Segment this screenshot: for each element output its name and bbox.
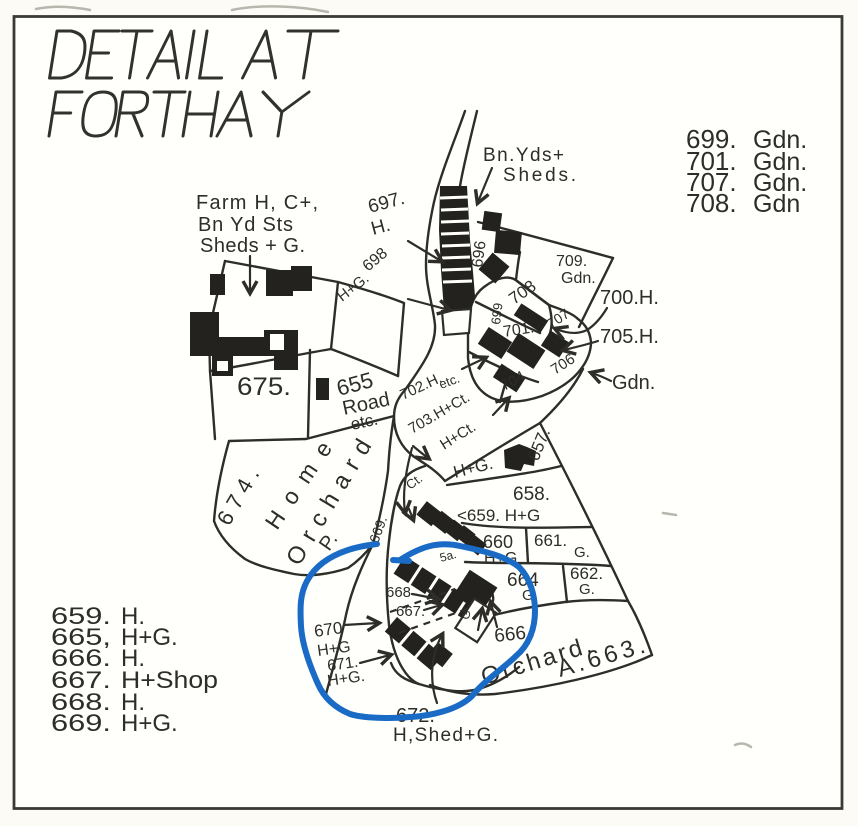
svg-text:700.H.: 700.H. [600, 287, 659, 309]
svg-text:668: 668 [386, 584, 411, 601]
svg-text:Sheds.: Sheds. [503, 165, 576, 186]
svg-text:708.: 708. [686, 188, 737, 218]
svg-text:H+G.: H+G. [121, 710, 178, 737]
svg-text:Farm H, C+,: Farm H, C+, [196, 192, 318, 214]
svg-text:709.: 709. [556, 253, 587, 270]
svg-text:Gdn.: Gdn. [561, 270, 596, 287]
svg-text:H,Shed+G.: H,Shed+G. [393, 725, 498, 746]
svg-text:658.: 658. [513, 484, 550, 505]
svg-text:G.: G. [579, 581, 595, 598]
svg-text:669.: 669. [51, 710, 111, 737]
svg-text:Sheds + G.: Sheds + G. [200, 235, 305, 257]
svg-text:699: 699 [488, 302, 506, 325]
svg-text:661.: 661. [534, 531, 567, 550]
svg-text:675.: 675. [237, 373, 291, 401]
svg-text:Bn Yd Sts: Bn Yd Sts [198, 214, 293, 236]
svg-text:705.H.: 705.H. [600, 326, 659, 348]
svg-text:Gdn: Gdn [753, 190, 800, 218]
svg-text:Gdn.: Gdn. [612, 372, 655, 394]
svg-text:G.: G. [574, 544, 590, 561]
svg-text:<659. H+G: <659. H+G [457, 506, 540, 525]
svg-text:660: 660 [483, 532, 513, 552]
svg-text:670: 670 [313, 618, 344, 641]
svg-text:667.: 667. [396, 603, 425, 620]
